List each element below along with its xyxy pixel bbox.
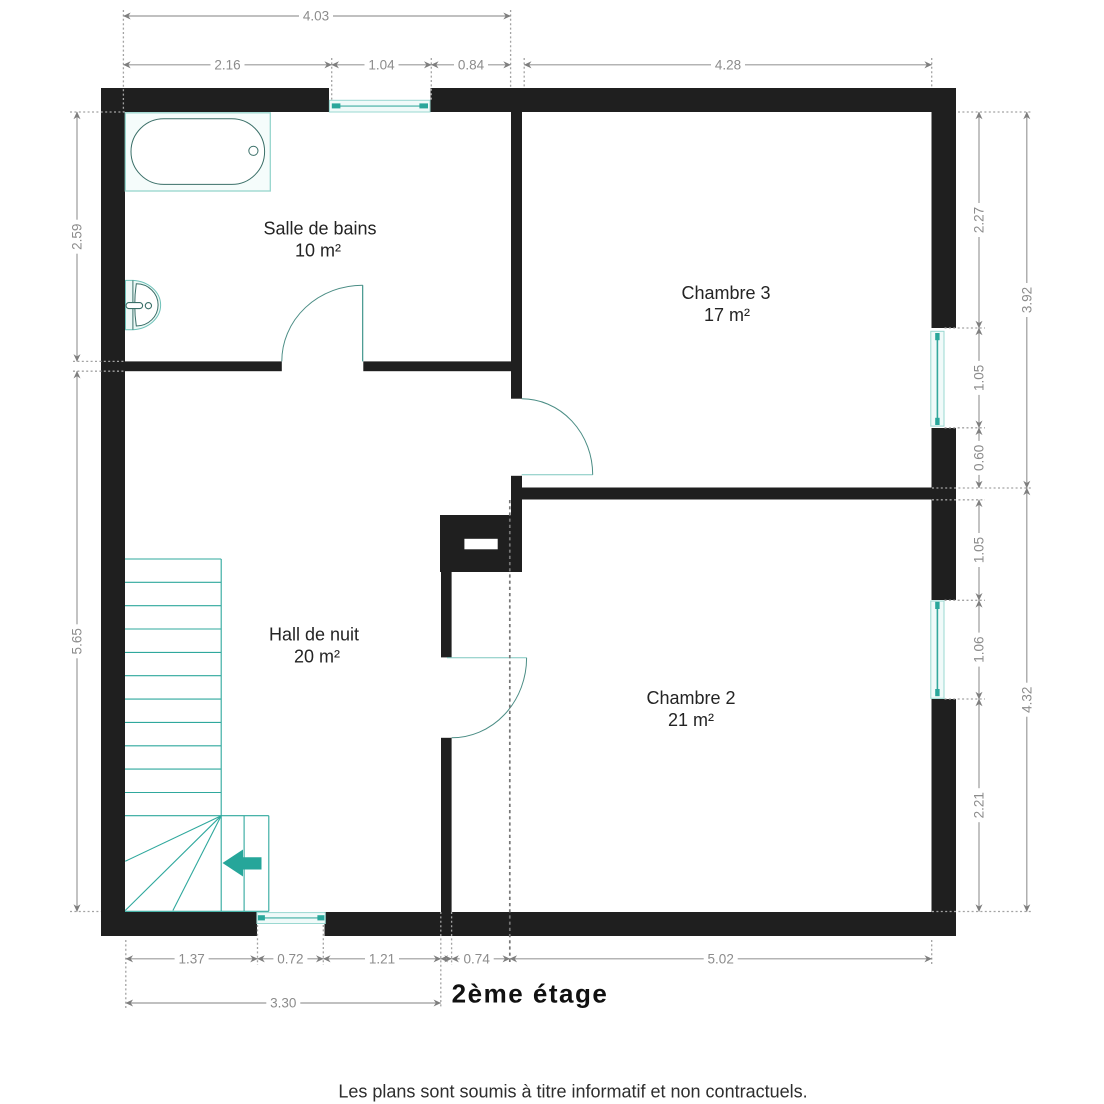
- svg-text:5.02: 5.02: [708, 951, 734, 966]
- svg-text:1.06: 1.06: [972, 636, 987, 662]
- svg-text:0.84: 0.84: [458, 57, 485, 72]
- svg-text:17 m²: 17 m²: [704, 305, 750, 325]
- svg-text:0.74: 0.74: [464, 951, 491, 966]
- svg-text:Chambre 2: Chambre 2: [646, 688, 735, 708]
- svg-text:2.21: 2.21: [972, 792, 987, 818]
- svg-text:1.37: 1.37: [178, 951, 204, 966]
- svg-text:0.72: 0.72: [277, 951, 303, 966]
- svg-text:2.59: 2.59: [70, 224, 85, 250]
- svg-text:0.60: 0.60: [972, 445, 987, 471]
- svg-text:5.65: 5.65: [70, 628, 85, 654]
- svg-text:Salle de bains: Salle de bains: [263, 219, 376, 239]
- svg-text:1.05: 1.05: [972, 365, 987, 391]
- svg-text:20 m²: 20 m²: [294, 647, 340, 667]
- svg-text:3.30: 3.30: [270, 996, 296, 1011]
- svg-text:2.16: 2.16: [214, 57, 240, 72]
- svg-text:2ème étage: 2ème étage: [452, 979, 609, 1009]
- svg-text:2.27: 2.27: [972, 207, 987, 233]
- svg-text:10 m²: 10 m²: [295, 241, 341, 261]
- svg-text:1.21: 1.21: [369, 951, 395, 966]
- svg-text:4.28: 4.28: [715, 57, 741, 72]
- svg-text:Chambre 3: Chambre 3: [681, 283, 770, 303]
- svg-text:Les plans sont soumis à titre: Les plans sont soumis à titre informatif…: [338, 1082, 807, 1102]
- svg-text:4.32: 4.32: [1019, 687, 1034, 713]
- svg-text:4.03: 4.03: [303, 9, 329, 24]
- svg-text:1.04: 1.04: [368, 57, 395, 72]
- svg-text:3.92: 3.92: [1019, 287, 1034, 313]
- svg-text:1.05: 1.05: [972, 537, 987, 563]
- svg-text:Hall de nuit: Hall de nuit: [269, 625, 359, 645]
- svg-text:21 m²: 21 m²: [668, 710, 714, 730]
